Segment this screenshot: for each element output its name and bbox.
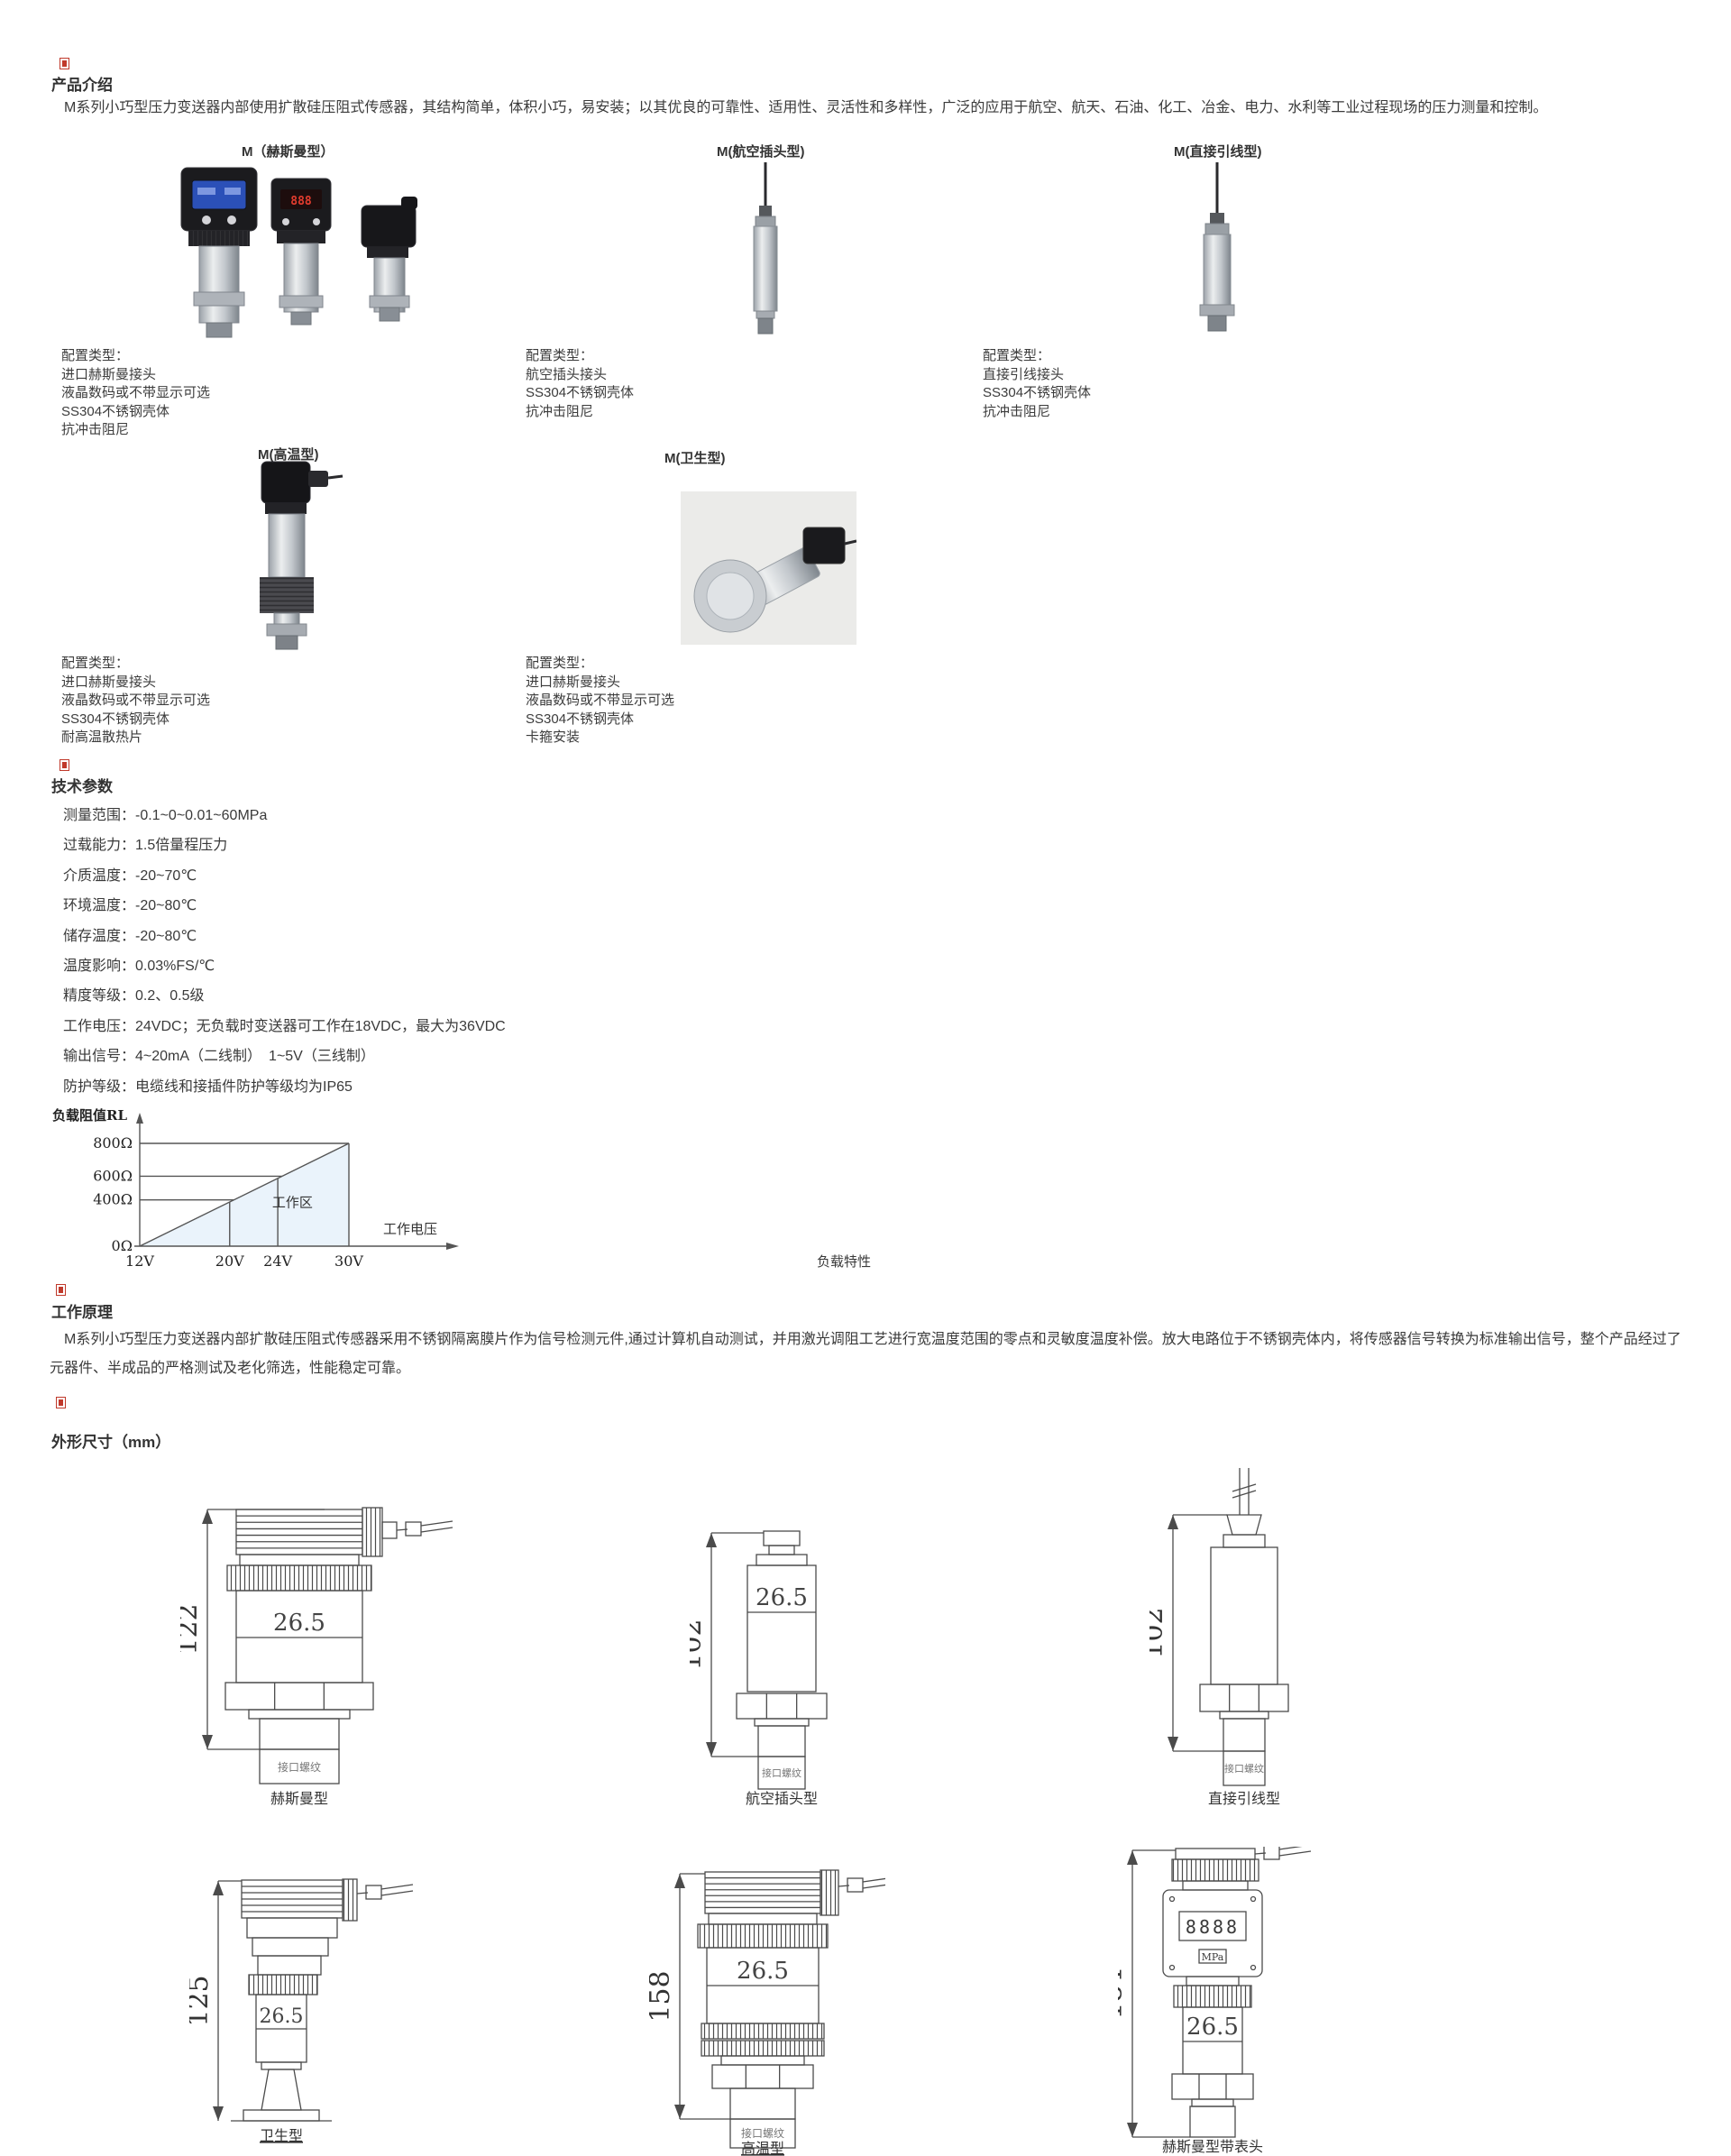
product-photo-direct-lead [1186, 162, 1249, 347]
svg-text:26.5: 26.5 [737, 1958, 789, 1985]
section-marker-icon [60, 58, 69, 69]
list-item: 抗冲击阻尼 [526, 403, 634, 422]
dimension-drawing-hirschmann: 26.5接口螺纹122赫斯曼型 [180, 1497, 460, 1826]
svg-text:航空插头型: 航空插头型 [746, 1791, 818, 1807]
svg-text:122: 122 [180, 1603, 204, 1655]
svg-text:直接引线型: 直接引线型 [1208, 1791, 1280, 1807]
list-item: 输出信号：4~20mA（二线制） 1~5V（三线制） [63, 1041, 506, 1071]
svg-text:888: 888 [290, 195, 312, 208]
section-marker-icon [56, 1284, 66, 1296]
svg-text:负载阻值RL: 负载阻值RL [52, 1107, 127, 1124]
product-photo-hirschmann-group: 888 [174, 161, 431, 347]
list-item: SS304不锈钢壳体 [61, 711, 210, 729]
svg-text:8888: 8888 [1186, 1916, 1240, 1938]
svg-text:30V: 30V [334, 1252, 363, 1270]
dimension-drawing-sanitary: 26.5125卫生型 [189, 1877, 424, 2156]
list-item: 介质温度：-20~70℃ [63, 861, 506, 891]
list-item: 液晶数码或不带显示可选 [61, 384, 210, 403]
svg-text:MPa: MPa [1202, 1951, 1224, 1963]
list-item: 防护等级：电缆线和接插件防护等级均为IP65 [63, 1072, 506, 1102]
svg-text:卫生型: 卫生型 [260, 2128, 303, 2144]
section-title-tech-params: 技术参数 [51, 774, 113, 796]
intro-paragraph: M系列小巧型压力变送器内部使用扩散硅压阻式传感器，其结构简单，体积小巧，易安装；… [50, 96, 1564, 121]
svg-text:26.5: 26.5 [260, 2005, 304, 2028]
list-item: 进口赫斯曼接头 [526, 674, 674, 693]
svg-text:12V: 12V [125, 1252, 154, 1270]
list-item: 温度影响：0.03%FS/℃ [63, 951, 506, 981]
svg-text:600Ω: 600Ω [93, 1167, 133, 1184]
list-item: 测量范围：-0.1~0~0.01~60MPa [63, 801, 506, 830]
section-title-intro: 产品介绍 [51, 72, 113, 95]
product-photo-high-temp [242, 460, 345, 656]
list-item: 工作电压：24VDC；无负载时变送器可工作在18VDC，最大为36VDC [63, 1012, 506, 1041]
dimension-drawing-high-temp: 26.5接口螺纹158高温型 [649, 1868, 885, 2156]
svg-text:接口螺纹: 接口螺纹 [1224, 1762, 1264, 1775]
svg-text:125: 125 [189, 1975, 215, 2026]
svg-text:工作电压: 工作电压 [383, 1222, 437, 1237]
model-label-aviation: M(航空插头型) [717, 142, 805, 161]
dimension-drawing-direct-lead: 接口螺纹102直接引线型 [1149, 1468, 1357, 1817]
svg-text:26.5: 26.5 [1186, 2014, 1239, 2041]
model-label-sanitary: M(卫生型) [664, 448, 726, 467]
svg-text:26.5: 26.5 [273, 1610, 325, 1637]
model-label-hirschmann: M（赫斯曼型） [242, 142, 334, 161]
list-item: 环境温度：-20~80℃ [63, 891, 506, 921]
config-items: 航空插头接头SS304不锈钢壳体抗冲击阻尼 [526, 366, 634, 422]
tech-params-list: 测量范围：-0.1~0~0.01~60MPa过载能力：1.5倍量程压力介质温度：… [63, 801, 506, 1102]
svg-text:26.5: 26.5 [756, 1584, 808, 1611]
config-list-aviation: 配置类型： 航空插头接头SS304不锈钢壳体抗冲击阻尼 [526, 347, 634, 421]
section-marker-icon [56, 1397, 66, 1408]
config-items: 进口赫斯曼接头液晶数码或不带显示可选SS304不锈钢壳体卡箍安装 [526, 674, 674, 748]
list-item: SS304不锈钢壳体 [983, 384, 1091, 403]
list-item: 进口赫斯曼接头 [61, 674, 210, 693]
list-item: 液晶数码或不带显示可选 [61, 692, 210, 711]
dimension-drawing-hirschmann-display: 8888MPa26.5184赫斯曼型带表头 [1118, 1847, 1515, 2156]
list-item: 直接引线接头 [983, 366, 1091, 385]
list-item: 耐高温散热片 [61, 729, 210, 748]
config-list-hirschmann: 配置类型： 进口赫斯曼接头液晶数码或不带显示可选SS304不锈钢壳体抗冲击阻尼 [61, 347, 210, 440]
svg-text:20V: 20V [215, 1252, 244, 1270]
svg-text:184: 184 [1118, 1968, 1129, 2019]
svg-text:158: 158 [649, 1970, 676, 2022]
svg-text:赫斯曼型带表头: 赫斯曼型带表头 [1162, 2139, 1263, 2155]
list-item: 进口赫斯曼接头 [61, 366, 210, 385]
product-photo-aviation [735, 162, 798, 347]
chart-caption: 负载特性 [817, 1252, 871, 1271]
svg-text:102: 102 [1149, 1607, 1169, 1658]
product-photo-sanitary [681, 491, 856, 649]
config-list-sanitary: 配置类型： 进口赫斯曼接头液晶数码或不带显示可选SS304不锈钢壳体卡箍安装 [526, 655, 674, 748]
section-marker-icon [60, 759, 69, 771]
svg-text:工作区: 工作区 [272, 1196, 313, 1211]
list-item: SS304不锈钢壳体 [526, 711, 674, 729]
list-item: 储存温度：-20~80℃ [63, 922, 506, 951]
dimension-drawing-aviation: 26.5接口螺纹102航空插头型 [690, 1526, 888, 1814]
svg-text:接口螺纹: 接口螺纹 [741, 2126, 784, 2140]
svg-text:400Ω: 400Ω [93, 1191, 133, 1208]
svg-text:高温型: 高温型 [741, 2141, 784, 2156]
list-item: 过载能力：1.5倍量程压力 [63, 830, 506, 860]
list-item: SS304不锈钢壳体 [61, 403, 210, 422]
config-title: 配置类型： [526, 347, 634, 366]
config-title: 配置类型： [983, 347, 1091, 366]
svg-text:24V: 24V [263, 1252, 292, 1270]
svg-text:接口螺纹: 接口螺纹 [278, 1760, 321, 1774]
list-item: 抗冲击阻尼 [61, 421, 210, 440]
load-characteristic-chart: 0Ω400Ω600Ω800Ω12V20V24V30V负载阻值RL工作电压工作区 [52, 1106, 521, 1281]
svg-text:102: 102 [690, 1619, 708, 1670]
model-label-direct-lead: M(直接引线型) [1174, 142, 1262, 161]
config-items: 进口赫斯曼接头液晶数码或不带显示可选SS304不锈钢壳体抗冲击阻尼 [61, 366, 210, 440]
principle-paragraph: M系列小巧型压力变送器内部扩散硅压阻式传感器采用不锈钢隔离膜片作为信号检测元件,… [50, 1326, 1690, 1383]
svg-text:800Ω: 800Ω [93, 1134, 133, 1151]
section-title-principle: 工作原理 [51, 1299, 113, 1322]
datasheet-page: 产品介绍 M系列小巧型压力变送器内部使用扩散硅压阻式传感器，其结构简单，体积小巧… [0, 0, 1731, 2156]
list-item: 卡箍安装 [526, 729, 674, 748]
config-items: 直接引线接头SS304不锈钢壳体抗冲击阻尼 [983, 366, 1091, 422]
config-title: 配置类型： [61, 655, 210, 674]
config-list-high-temp: 配置类型： 进口赫斯曼接头液晶数码或不带显示可选SS304不锈钢壳体耐高温散热片 [61, 655, 210, 748]
config-title: 配置类型： [61, 347, 210, 366]
config-list-direct-lead: 配置类型： 直接引线接头SS304不锈钢壳体抗冲击阻尼 [983, 347, 1091, 421]
section-title-dimensions: 外形尺寸（mm） [51, 1429, 170, 1452]
config-title: 配置类型： [526, 655, 674, 674]
config-items: 进口赫斯曼接头液晶数码或不带显示可选SS304不锈钢壳体耐高温散热片 [61, 674, 210, 748]
list-item: 液晶数码或不带显示可选 [526, 692, 674, 711]
list-item: SS304不锈钢壳体 [526, 384, 634, 403]
list-item: 精度等级：0.2、0.5级 [63, 981, 506, 1011]
list-item: 航空插头接头 [526, 366, 634, 385]
list-item: 抗冲击阻尼 [983, 403, 1091, 422]
svg-text:赫斯曼型: 赫斯曼型 [270, 1791, 328, 1807]
svg-text:接口螺纹: 接口螺纹 [762, 1766, 801, 1779]
